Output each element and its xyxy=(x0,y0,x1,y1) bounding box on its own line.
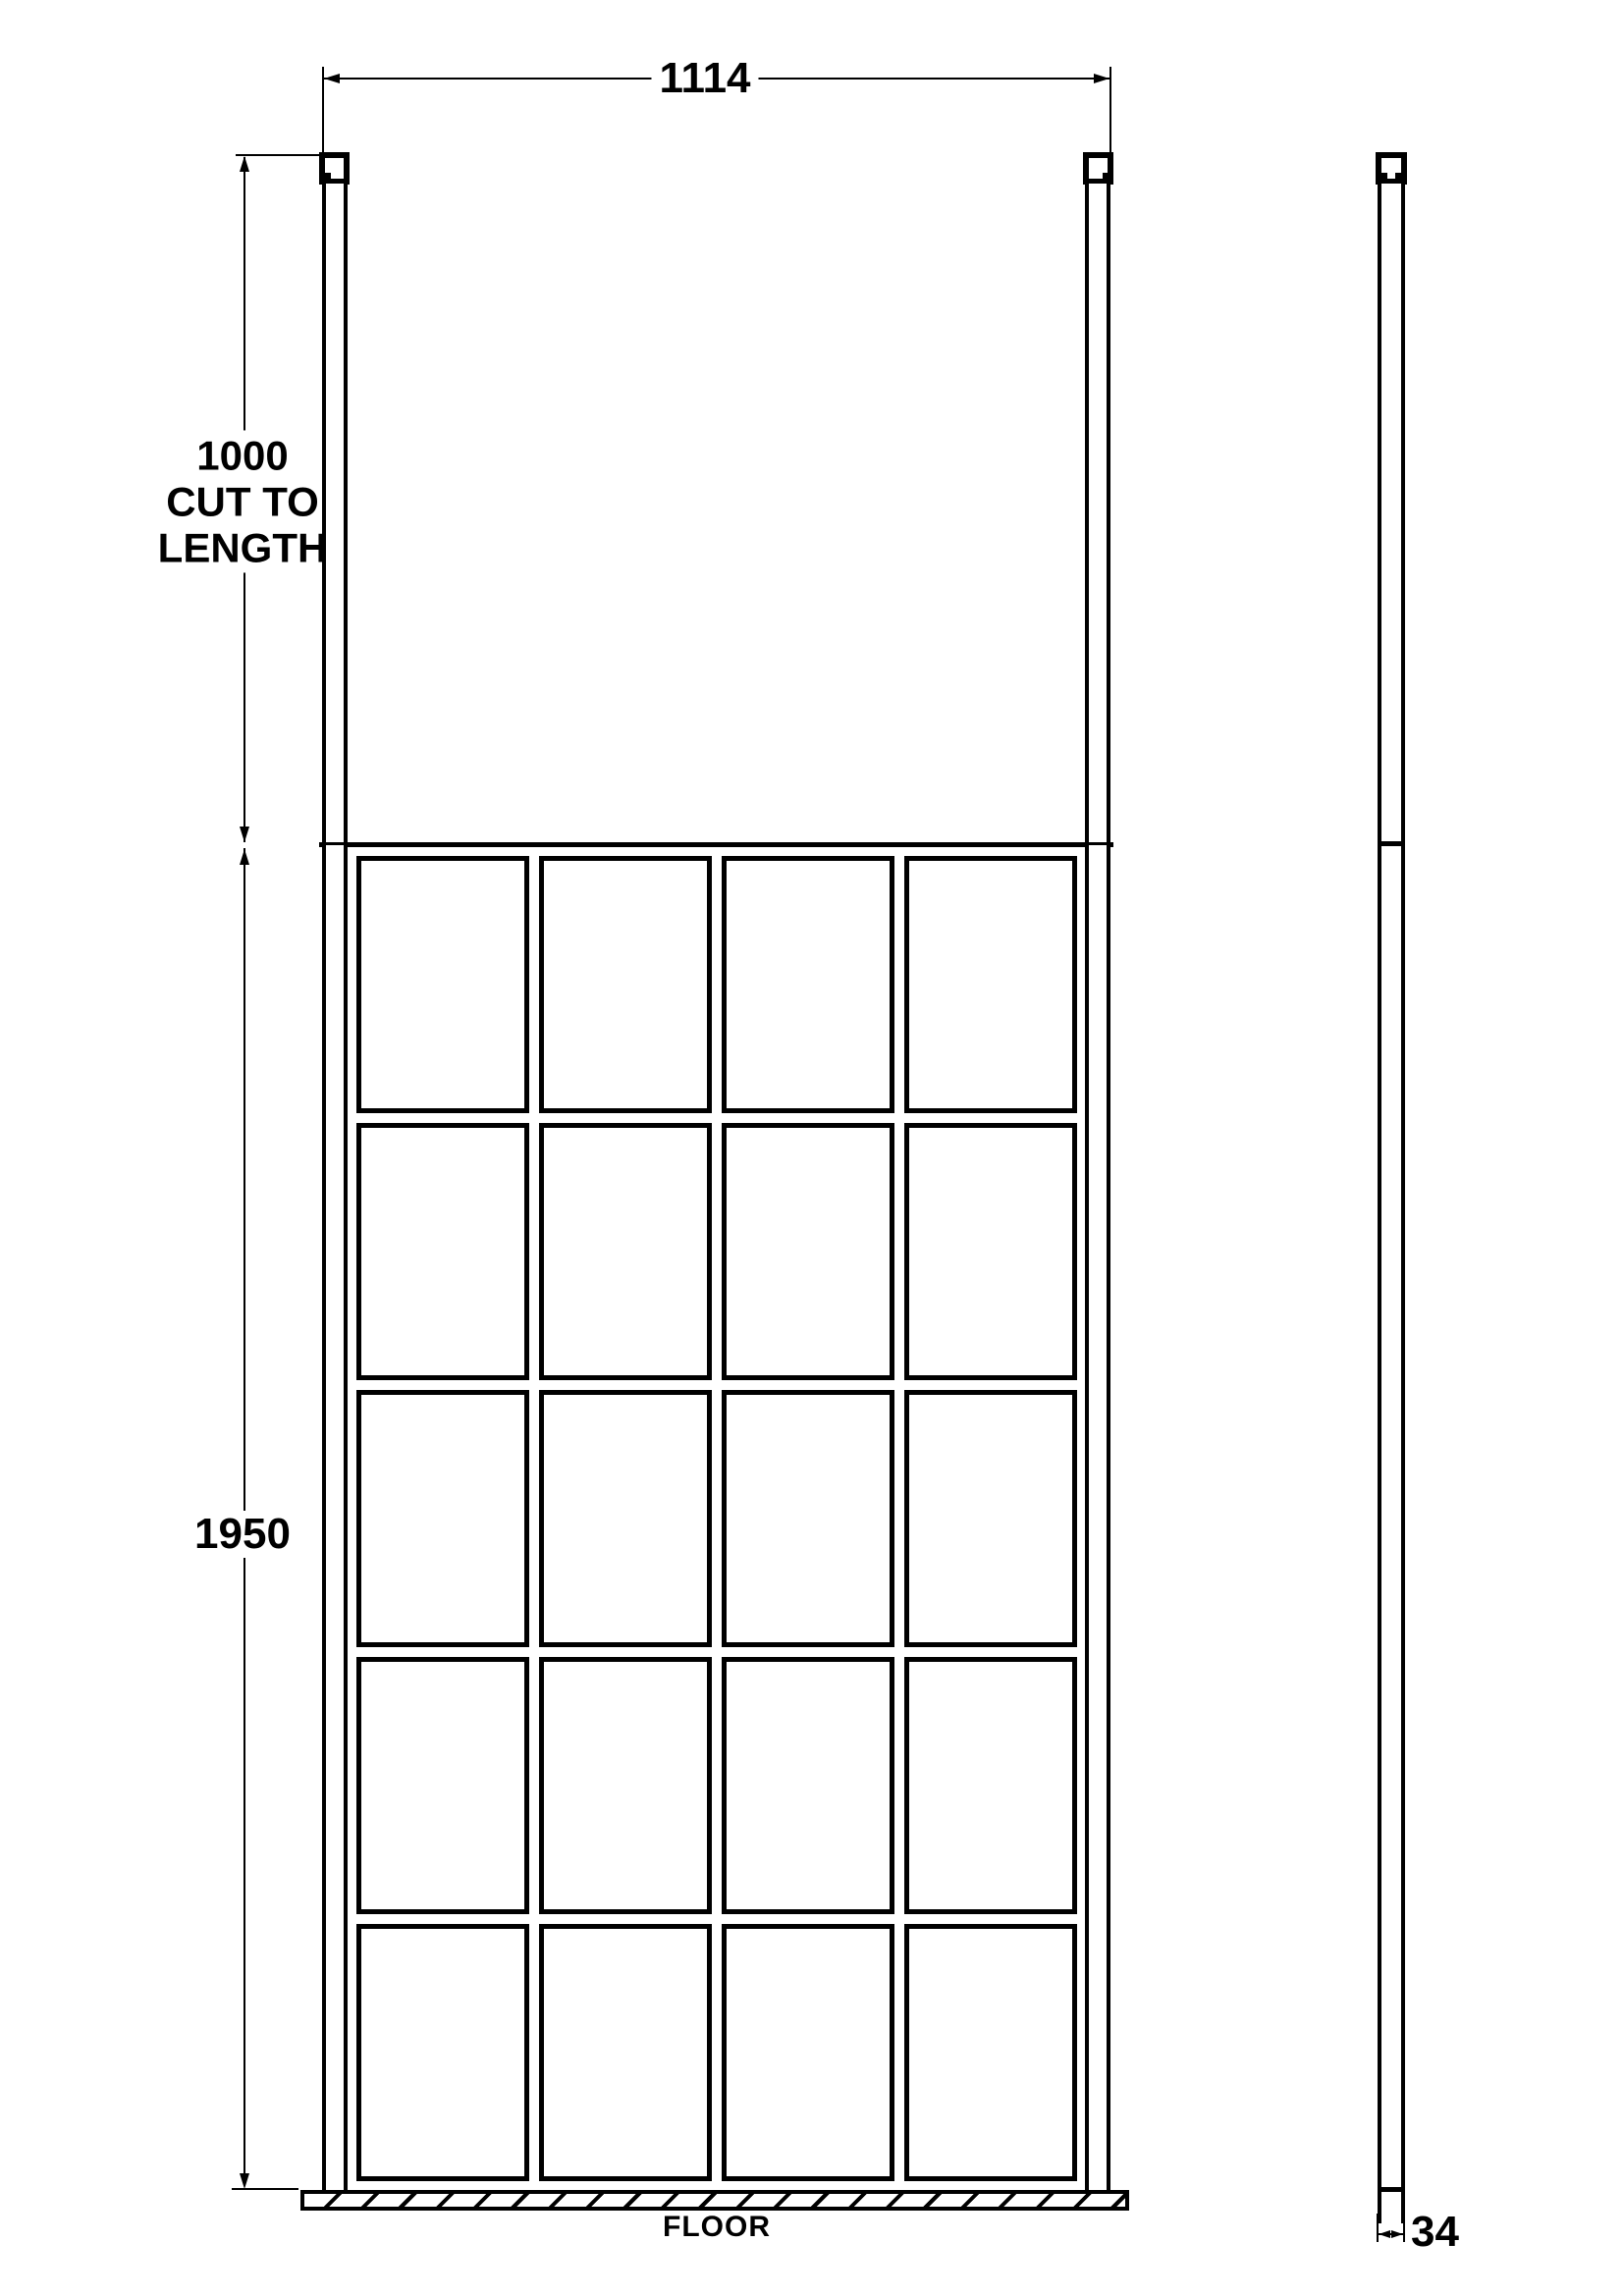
post-dim-label-line2: CUT TO xyxy=(158,478,328,524)
screen-frame-left-member xyxy=(322,845,348,2190)
glass-pane xyxy=(539,1657,712,1914)
height-dim-arrow-up-icon xyxy=(240,849,249,865)
floor-strip xyxy=(300,2190,1129,2211)
glass-pane xyxy=(904,1657,1077,1914)
glass-pane xyxy=(722,1657,894,1914)
height-dim-arrow-down-icon xyxy=(240,2173,249,2189)
width-dim-arrow-right-icon xyxy=(1094,74,1109,83)
glass-pane xyxy=(904,1123,1077,1380)
technical-drawing-canvas: 1114 1000 CUT TO LENGTH 1950 FLOOR 34 xyxy=(0,0,1623,2296)
glass-pane xyxy=(356,1924,529,2181)
depth-dim-label: 34 xyxy=(1411,2208,1459,2257)
width-dim-extension-right xyxy=(1109,67,1111,153)
left-post-ceiling-cap xyxy=(319,152,350,185)
side-view-frame-top-joint xyxy=(1378,841,1405,846)
glass-pane xyxy=(722,856,894,1113)
post-dim-label: 1000 CUT TO LENGTH xyxy=(152,430,334,572)
post-dim-label-line1: 1000 xyxy=(158,432,328,478)
glass-pane xyxy=(539,856,712,1113)
width-dim-arrow-left-icon xyxy=(324,74,340,83)
side-view-cap-flange-right xyxy=(1395,173,1402,180)
right-post-ceiling-cap xyxy=(1083,152,1113,185)
depth-dim-extension-right xyxy=(1403,2214,1405,2242)
side-view-ceiling-cap xyxy=(1376,152,1407,185)
height-dim-bottom-tick xyxy=(232,2188,298,2190)
side-view-cap-flange-left xyxy=(1380,173,1387,180)
left-ceiling-post xyxy=(322,184,348,845)
screen-frame-right-member xyxy=(1085,845,1110,2190)
glass-pane xyxy=(722,1390,894,1647)
glass-pane xyxy=(722,1924,894,2181)
depth-dim-arrow-left-icon xyxy=(1379,2230,1390,2238)
side-view-floor-joint xyxy=(1378,2187,1405,2192)
depth-dim-arrow-right-icon xyxy=(1391,2230,1403,2238)
glass-pane xyxy=(904,1924,1077,2181)
glass-pane xyxy=(356,1390,529,1647)
width-dim-label: 1114 xyxy=(651,55,758,102)
glass-pane xyxy=(904,856,1077,1113)
height-dim-label: 1950 xyxy=(187,1511,298,1558)
right-ceiling-post xyxy=(1085,184,1110,845)
side-view-profile xyxy=(1378,184,1405,2223)
screen-frame-top xyxy=(319,842,1113,847)
glass-pane xyxy=(904,1390,1077,1647)
left-post-cap-flange xyxy=(324,173,331,180)
glass-pane xyxy=(539,1924,712,2181)
floor-label: FLOOR xyxy=(663,2211,771,2244)
post-dim-arrow-down-icon xyxy=(240,827,249,842)
post-dim-arrow-up-icon xyxy=(240,156,249,172)
glass-pane xyxy=(539,1390,712,1647)
glass-pane xyxy=(356,1657,529,1914)
right-post-cap-flange xyxy=(1103,173,1109,180)
glass-pane xyxy=(722,1123,894,1380)
glass-pane xyxy=(539,1123,712,1380)
post-dim-label-line3: LENGTH xyxy=(158,525,328,571)
glass-pane xyxy=(356,856,529,1113)
glass-pane xyxy=(356,1123,529,1380)
